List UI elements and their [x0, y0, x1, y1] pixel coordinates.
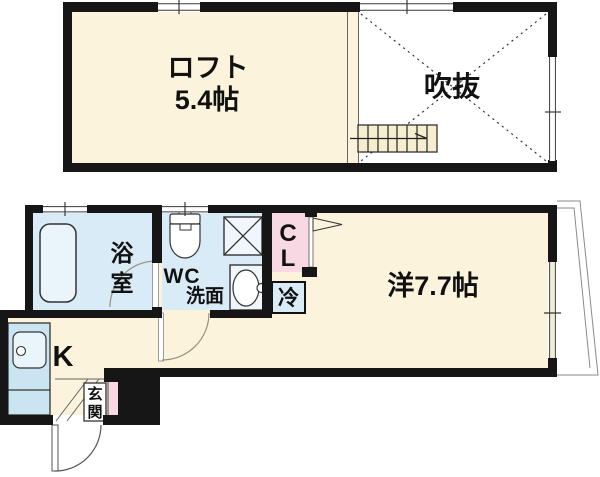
closet-label-bottom: L [281, 245, 296, 272]
entrance-door [52, 425, 101, 471]
bathroom-label-top: 浴 [111, 240, 135, 266]
floorplan: ロフト 5.4帖 吹抜 [0, 0, 600, 477]
bathtub-icon [40, 224, 76, 302]
loft-size-label: 5.4帖 [175, 85, 240, 115]
loft-void-partition [347, 12, 359, 163]
fridge-label: 冷 [278, 286, 299, 310]
loft-label: ロフト [168, 53, 249, 83]
washing-machine-icon [224, 217, 262, 255]
main-room-label: 洋7.7帖 [387, 270, 479, 301]
washroom-label: 洗面 [186, 284, 224, 307]
entrance-label-bottom: 関 [87, 404, 102, 421]
faucet-icon [17, 347, 26, 356]
kitchen-label: K [53, 341, 74, 373]
bathroom-label-bottom: 室 [111, 270, 134, 296]
kitchen-counter [8, 323, 50, 415]
upper-floor: ロフト 5.4帖 吹抜 [63, 0, 561, 172]
closet-label-top: C [279, 220, 296, 247]
stairs-icon [350, 125, 437, 152]
closet-door [309, 217, 313, 267]
lower-floor: 浴 室 WC 洗面 C L 冷 洋7.7帖 K 玄 関 [0, 201, 598, 471]
balcony-outline [557, 201, 598, 375]
void-top-window [360, 0, 453, 14]
toilet-icon [170, 211, 200, 258]
door-swing-arc [55, 425, 101, 471]
loft-window [158, 0, 200, 14]
entrance-label-top: 玄 [87, 385, 102, 403]
washbasin-icon [230, 265, 267, 310]
void-label: 吹抜 [424, 71, 481, 102]
wc-label: WC [164, 265, 201, 288]
